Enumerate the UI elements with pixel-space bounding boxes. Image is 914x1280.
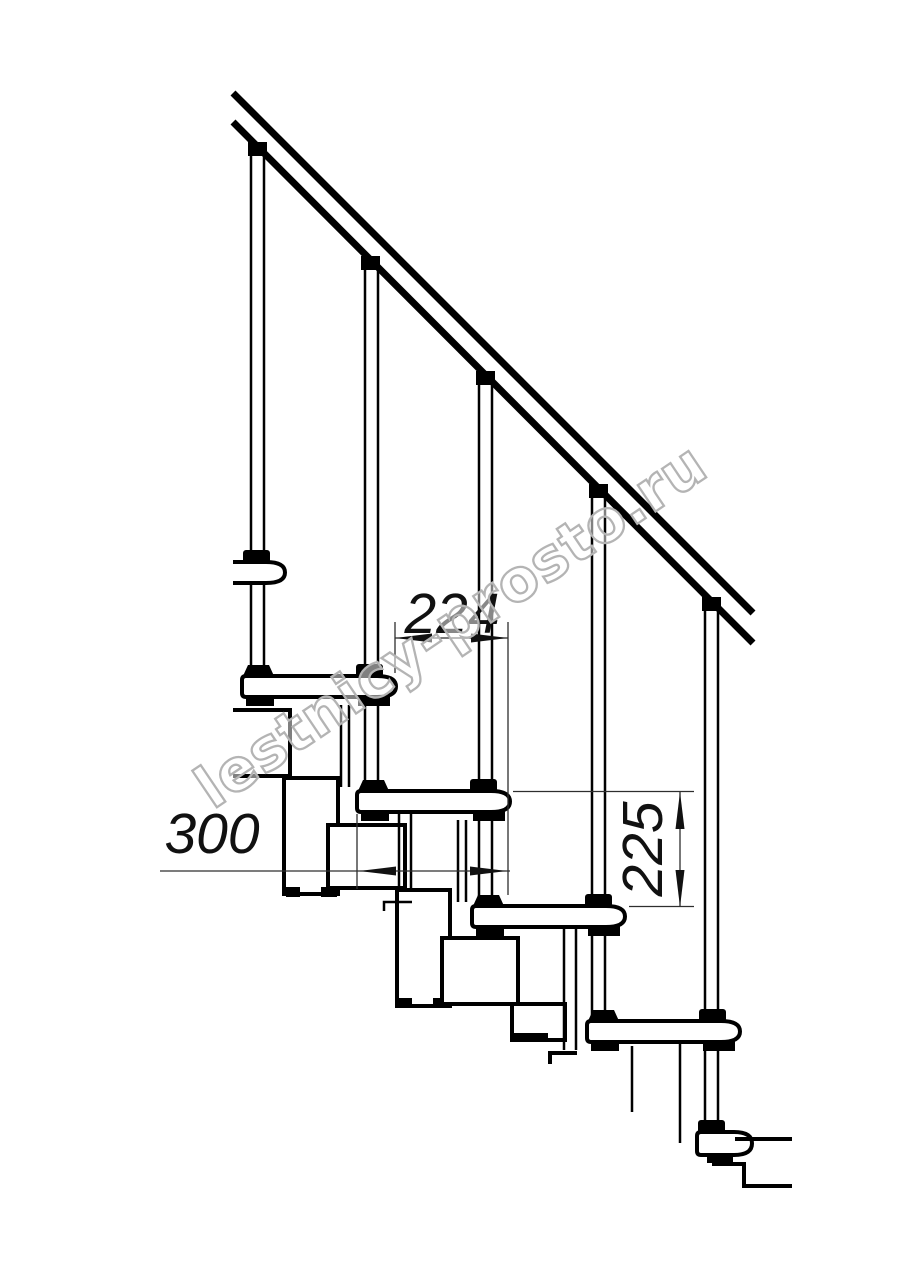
module-box-a4 <box>442 938 518 1004</box>
dimension-riser-height-225: 225 <box>513 792 694 908</box>
baluster-5 <box>702 597 721 1132</box>
arrow-down <box>676 870 685 907</box>
tread-underside-connector <box>588 925 620 936</box>
arrow-up <box>676 792 685 829</box>
module-foot <box>514 1033 548 1042</box>
staircase-elevation-drawing: 224 300 225 lestnicy-prosto.ru <box>0 0 914 1280</box>
tread-1-fill <box>233 564 282 581</box>
floor-plate <box>697 1132 752 1155</box>
tread-underside-connector <box>707 1153 733 1163</box>
tread-5 <box>587 1021 740 1042</box>
tread-underside-connector <box>473 810 505 821</box>
module-box-a3 <box>328 825 405 888</box>
tread-underside-connector <box>246 695 274 706</box>
arrow-right <box>470 867 507 876</box>
drawing-canvas: 224 300 225 lestnicy-prosto.ru <box>0 0 914 1280</box>
dimension-value-riser-height: 225 <box>611 801 675 897</box>
tread-4 <box>472 906 625 927</box>
tread-3 <box>357 791 510 812</box>
tread-underside-connector <box>361 810 389 821</box>
tread-underside-connector <box>591 1040 619 1051</box>
tread-underside-connector <box>476 925 504 936</box>
baluster-1 <box>248 142 267 676</box>
floor-step-line <box>712 1164 792 1186</box>
module-foot <box>399 998 412 1007</box>
dimension-value-tread-depth: 300 <box>164 802 259 866</box>
baluster-collar <box>243 550 270 563</box>
tread-underside-connector <box>703 1040 735 1051</box>
module-box-a5-partial <box>550 1053 577 1064</box>
module-foot <box>286 887 300 897</box>
